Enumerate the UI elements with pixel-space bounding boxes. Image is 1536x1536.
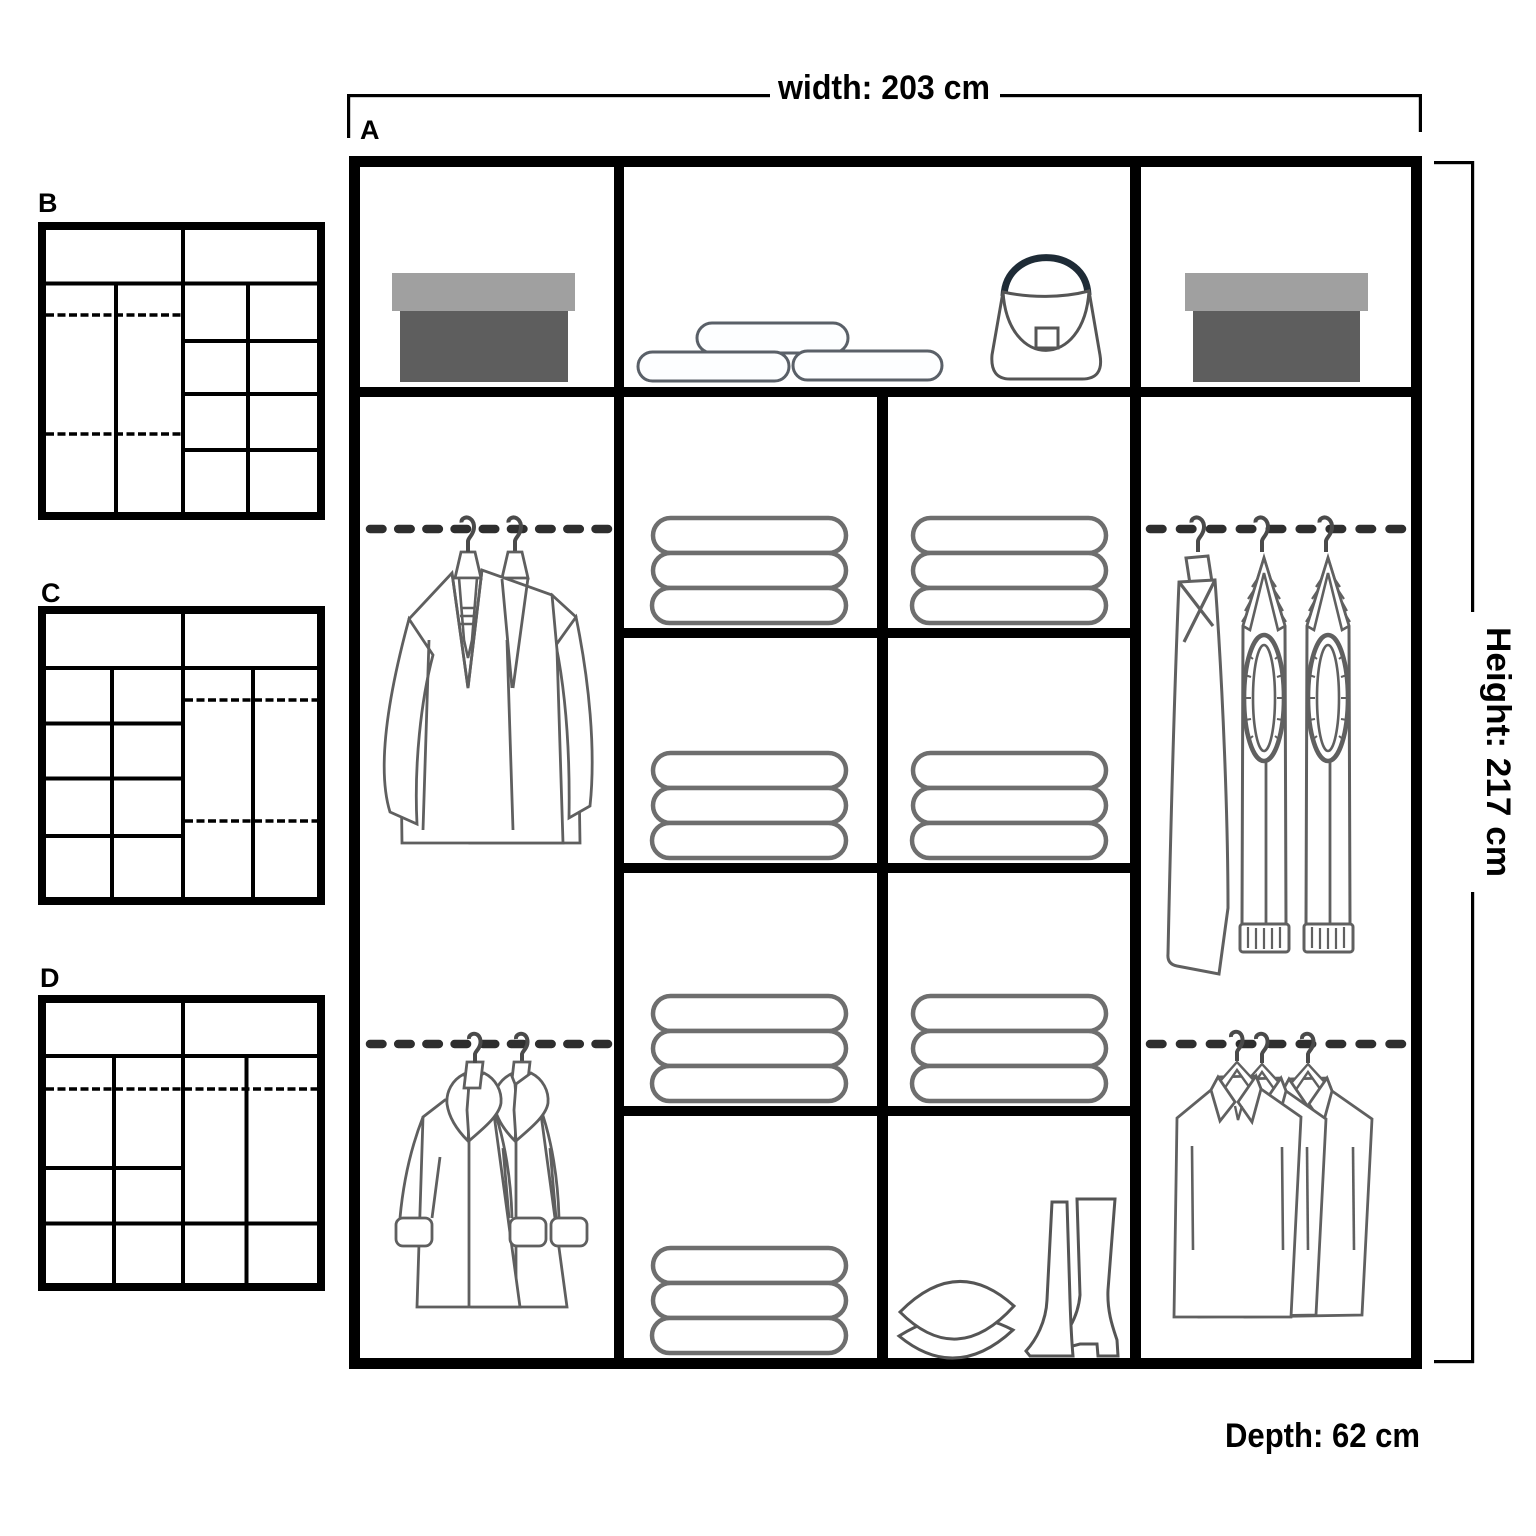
svg-text:Height: 217 cm: Height: 217 cm [1479,627,1517,877]
svg-text:width: 203 cm: width: 203 cm [777,69,990,107]
svg-text:A: A [360,115,380,145]
svg-text:Depth: 62 cm: Depth: 62 cm [1225,1417,1420,1455]
svg-text:D: D [40,963,60,993]
svg-text:C: C [41,578,61,608]
svg-text:B: B [38,188,58,218]
